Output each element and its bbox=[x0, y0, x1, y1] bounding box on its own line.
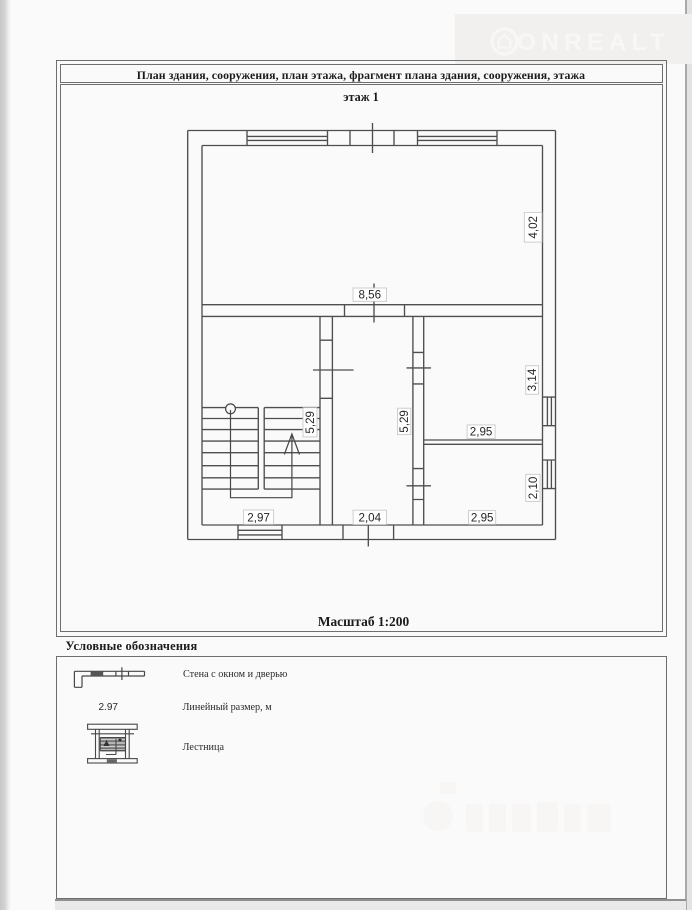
svg-text:2,95: 2,95 bbox=[471, 511, 494, 524]
svg-text:2,04: 2,04 bbox=[359, 512, 382, 525]
svg-text:4,02: 4,02 bbox=[527, 216, 540, 239]
svg-text:5,29: 5,29 bbox=[398, 410, 411, 433]
svg-text:2,97: 2,97 bbox=[247, 511, 270, 524]
svg-text:5,29: 5,29 bbox=[304, 411, 317, 434]
svg-text:2,10: 2,10 bbox=[527, 477, 540, 500]
svg-text:8,56: 8,56 bbox=[359, 289, 382, 302]
svg-text:2,95: 2,95 bbox=[470, 426, 493, 439]
svg-text:3,14: 3,14 bbox=[526, 368, 539, 391]
